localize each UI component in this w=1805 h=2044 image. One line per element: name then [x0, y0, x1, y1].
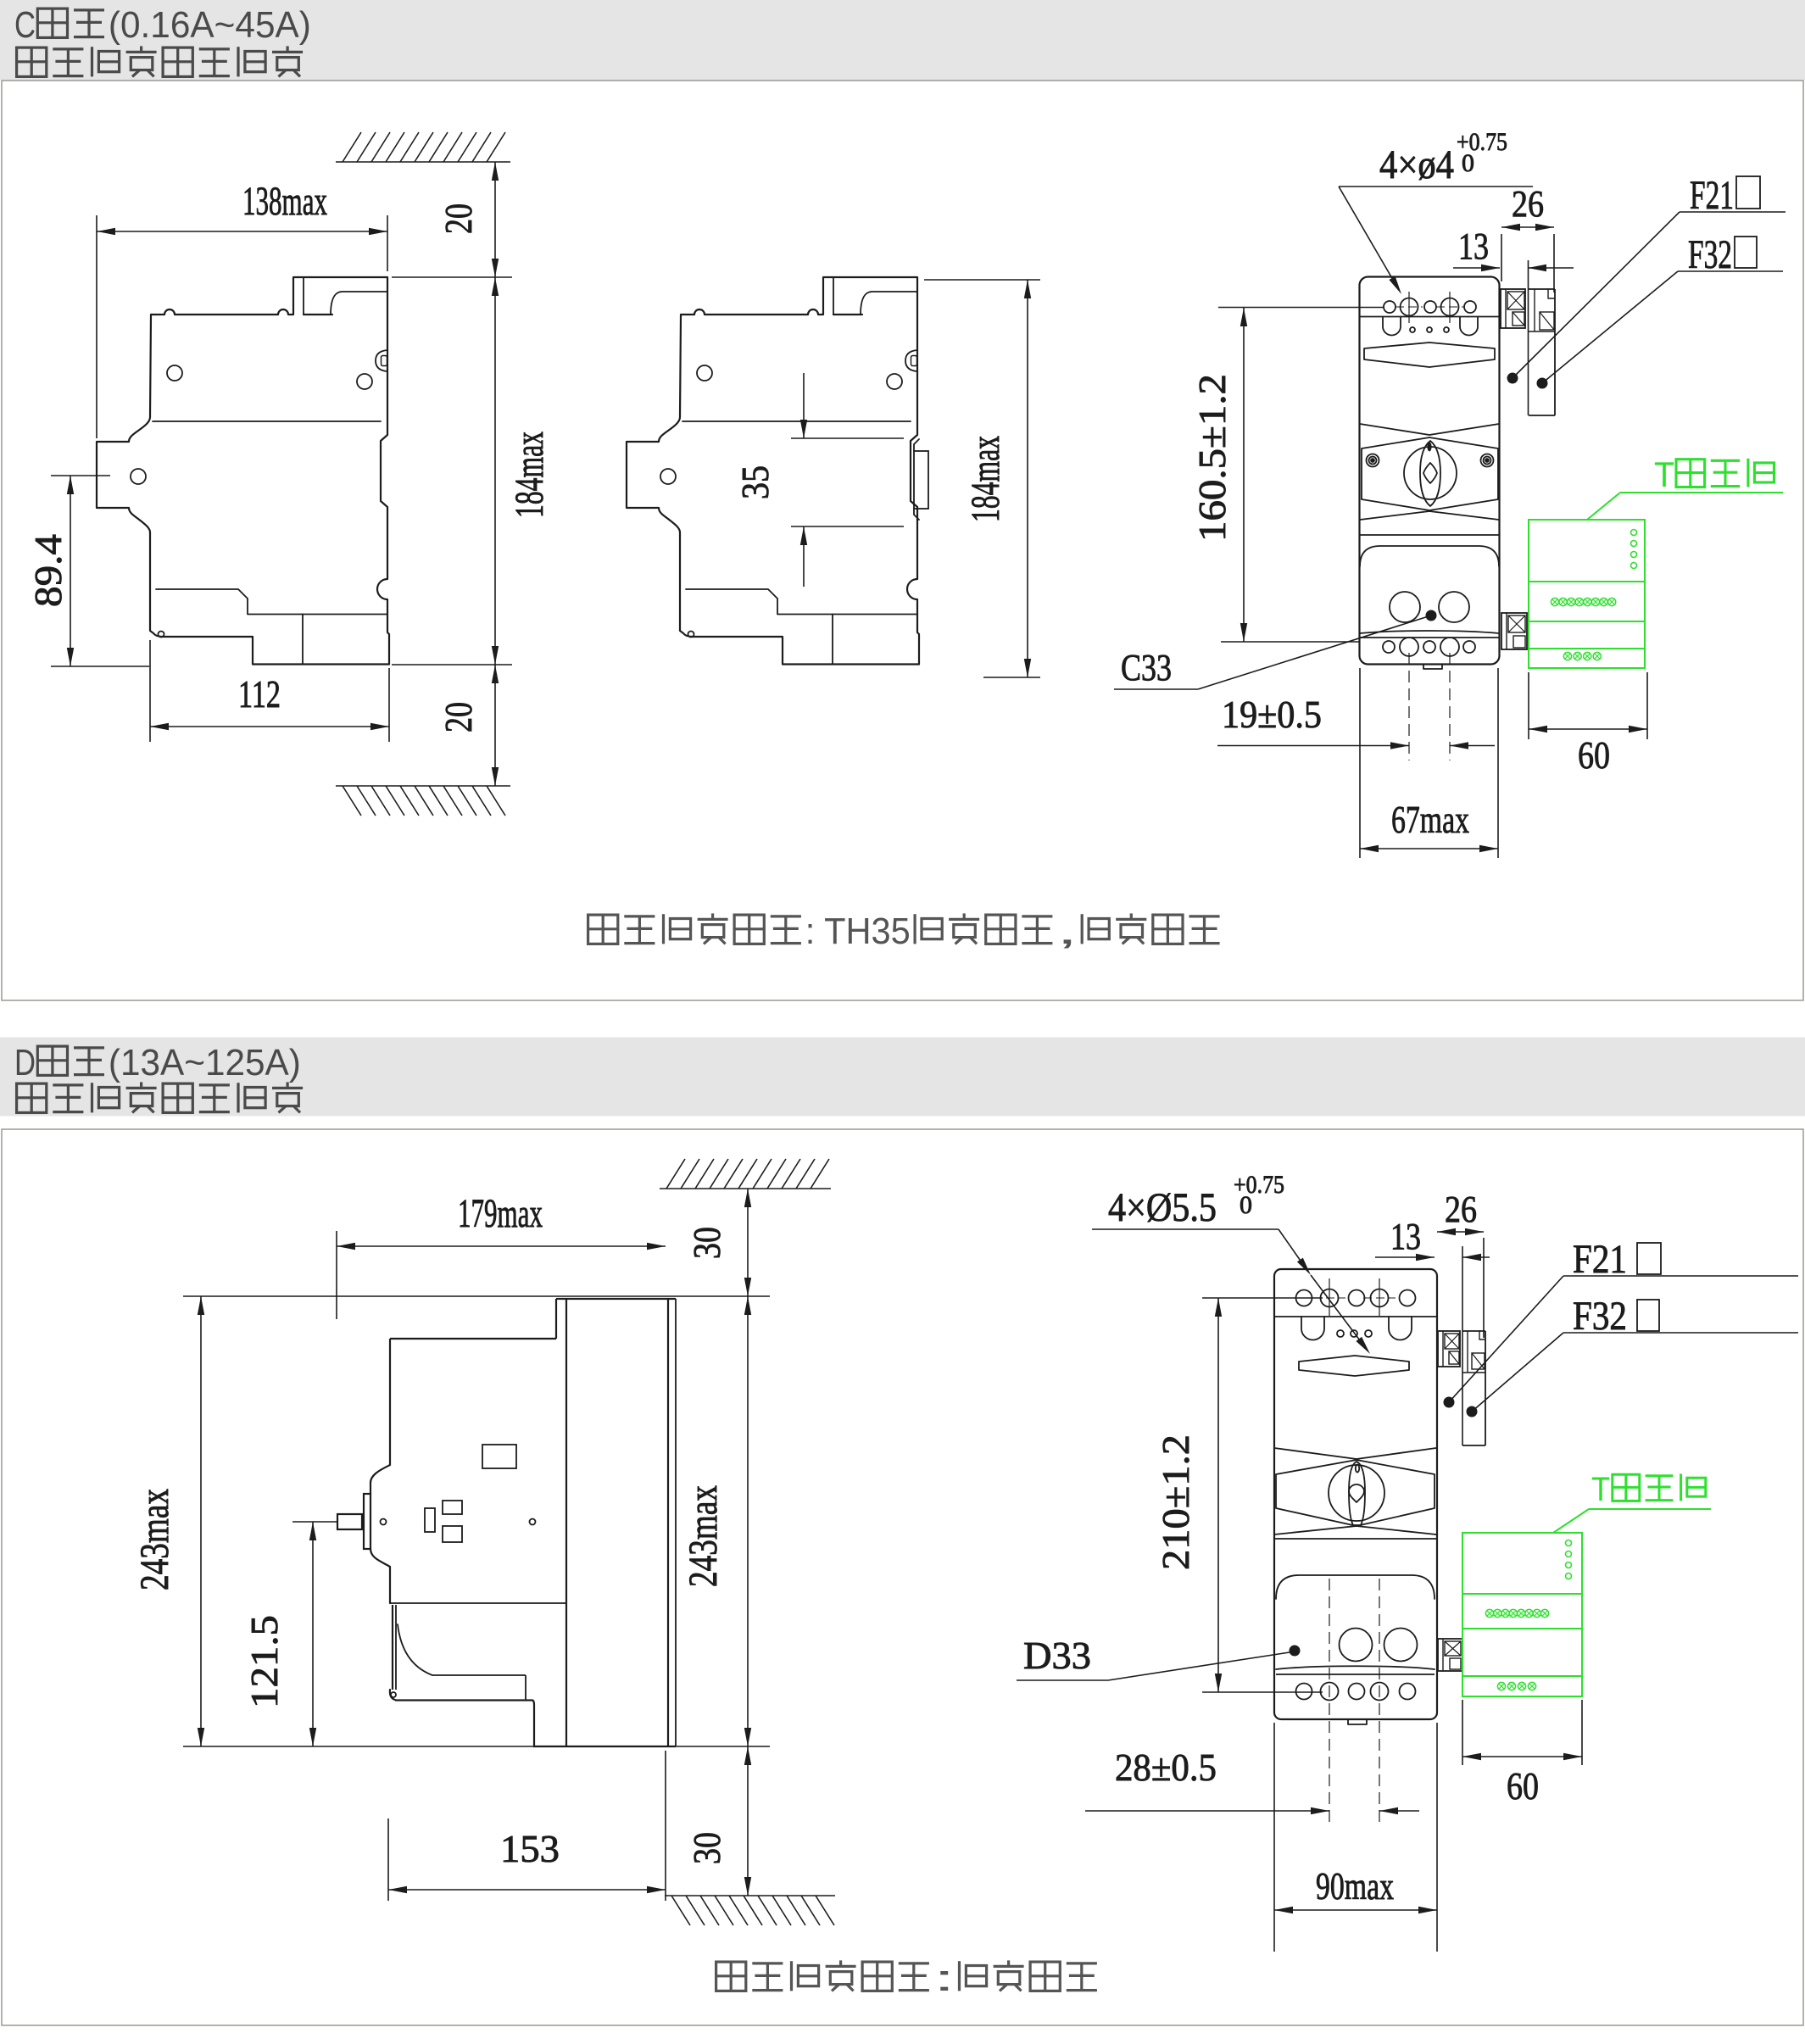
svg-text:19±0.5: 19±0.5 [1222, 693, 1322, 736]
svg-text:30: 30 [685, 1832, 728, 1864]
svg-text:210±1.2: 210±1.2 [1154, 1434, 1197, 1570]
svg-text:4×ø4: 4×ø4 [1379, 142, 1454, 187]
svg-text:F32: F32 [1688, 232, 1732, 277]
svg-text:: TH35: : TH35 [805, 911, 911, 952]
svg-text:160.5±1.2: 160.5±1.2 [1190, 374, 1234, 542]
svg-text:121.5: 121.5 [242, 1615, 286, 1708]
svg-text:243max: 243max [681, 1485, 726, 1587]
svg-text:20: 20 [437, 702, 480, 732]
svg-text:(13A~125A): (13A~125A) [109, 1042, 301, 1083]
svg-text:D: D [14, 1042, 36, 1083]
svg-text:20: 20 [437, 203, 480, 234]
svg-text:179max: 179max [458, 1191, 543, 1236]
svg-text:112: 112 [238, 672, 281, 716]
svg-text:0: 0 [1462, 149, 1474, 177]
svg-text::: : [933, 1958, 955, 1999]
svg-text:30: 30 [685, 1227, 728, 1259]
svg-text:184max: 184max [963, 436, 1008, 522]
svg-text:184max: 184max [507, 432, 552, 518]
svg-text:138max: 138max [242, 179, 327, 224]
svg-text:26: 26 [1512, 183, 1544, 225]
svg-text:0: 0 [1240, 1191, 1252, 1219]
svg-text:C: C [14, 4, 36, 46]
svg-text:243max: 243max [132, 1489, 177, 1590]
svg-text:60: 60 [1578, 733, 1610, 777]
svg-text:35: 35 [733, 465, 777, 499]
svg-text:F21: F21 [1573, 1237, 1627, 1282]
svg-text:C33: C33 [1121, 647, 1172, 688]
svg-text:28±0.5: 28±0.5 [1115, 1746, 1217, 1789]
svg-text:,: , [1056, 911, 1078, 952]
svg-text:F21: F21 [1690, 173, 1734, 218]
svg-text:(0.16A~45A): (0.16A~45A) [109, 4, 311, 46]
svg-text:67max: 67max [1391, 798, 1469, 841]
svg-text:26: 26 [1445, 1189, 1477, 1230]
svg-text:153: 153 [500, 1827, 560, 1870]
svg-text:T: T [1591, 1471, 1610, 1508]
svg-text:D33: D33 [1023, 1634, 1091, 1677]
svg-text:4×Ø5.5: 4×Ø5.5 [1108, 1185, 1217, 1230]
svg-text:F32: F32 [1573, 1294, 1627, 1339]
svg-text:13: 13 [1390, 1216, 1421, 1257]
svg-text:89.4: 89.4 [26, 534, 70, 607]
svg-text:T: T [1654, 454, 1674, 494]
svg-text:60: 60 [1507, 1764, 1539, 1807]
svg-text:13: 13 [1458, 226, 1489, 267]
svg-text:90max: 90max [1316, 1864, 1394, 1908]
